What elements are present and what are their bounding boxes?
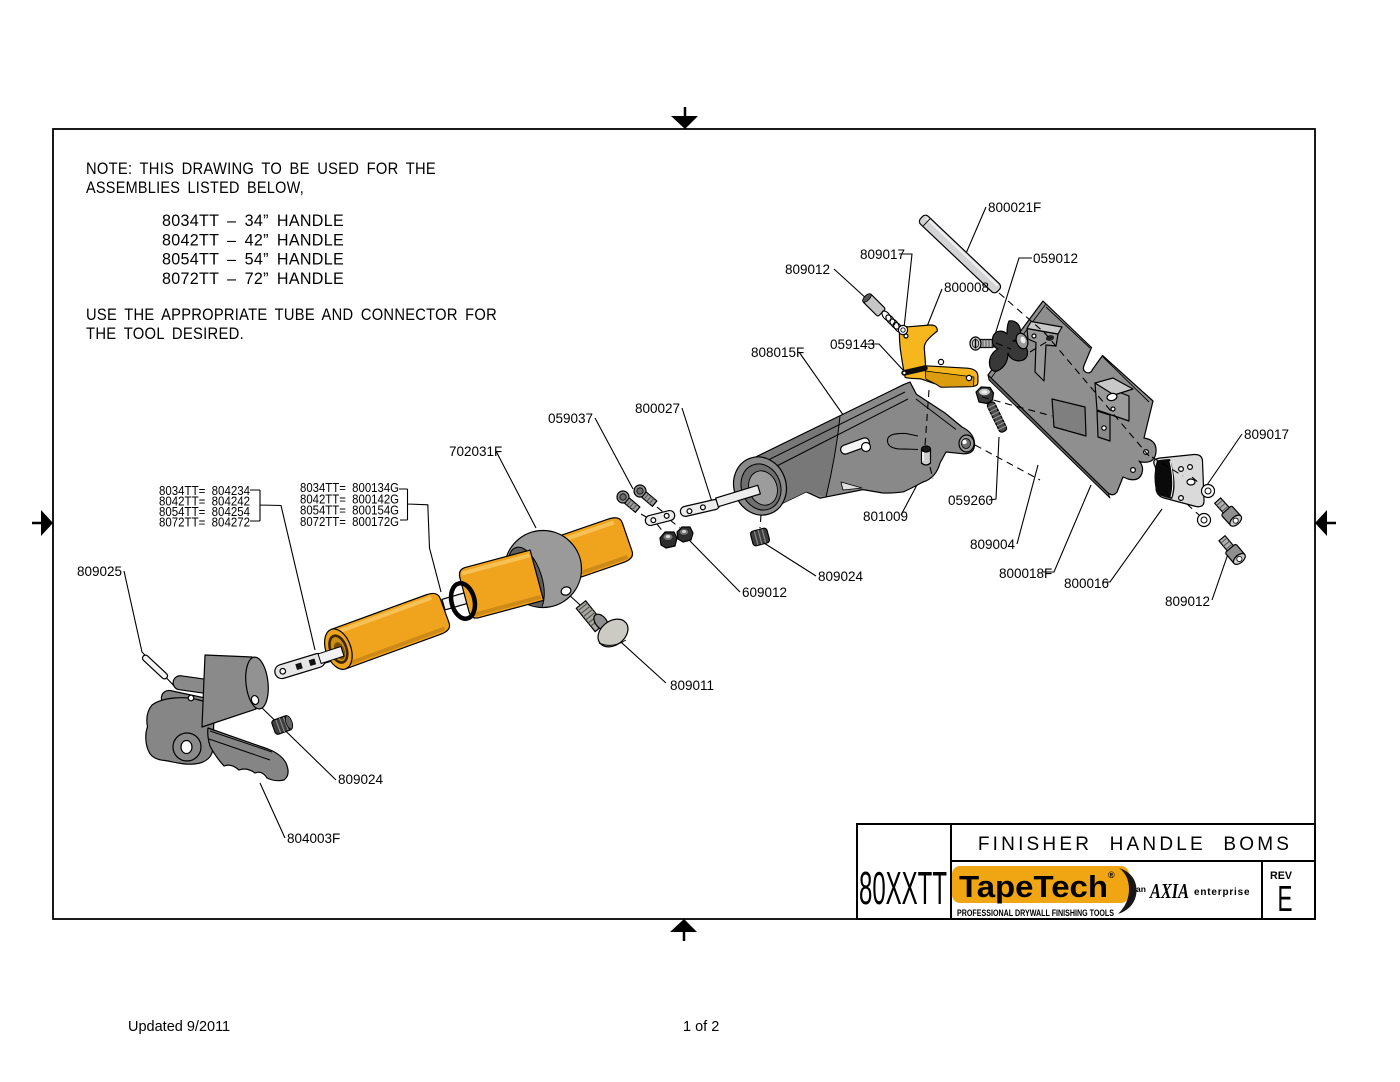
svg-text:8072TT – 72” HANDLE: 8072TT – 72” HANDLE [162,270,344,288]
svg-text:702031F: 702031F [449,444,502,459]
svg-text:FINISHER HANDLE BOMS: FINISHER HANDLE BOMS [978,834,1292,855]
svg-text:8034TT – 34” HANDLE: 8034TT – 34” HANDLE [162,212,344,230]
svg-text:809024: 809024 [338,772,384,787]
svg-text:800008: 800008 [944,280,989,295]
svg-text:8042TT – 42” HANDLE: 8042TT – 42” HANDLE [162,231,344,249]
svg-text:808015F: 808015F [751,345,804,360]
svg-text:®: ® [1108,870,1115,880]
svg-text:800016: 800016 [1064,576,1109,591]
svg-text:800021F: 800021F [988,200,1041,215]
svg-text:8072TT= 804272: 8072TT= 804272 [159,516,250,530]
svg-text:NOTE: THIS DRAWING TO BE USED: NOTE: THIS DRAWING TO BE USED FOR THE [86,160,436,178]
svg-text:E: E [1278,878,1293,919]
svg-text:800027: 800027 [635,401,680,416]
svg-text:809017: 809017 [860,247,905,262]
svg-text:8054TT – 54” HANDLE: 8054TT – 54” HANDLE [162,251,344,269]
svg-text:809011: 809011 [670,678,714,693]
svg-text:80XXTT: 80XXTT [859,862,947,914]
svg-text:an: an [1136,884,1146,894]
svg-text:059037: 059037 [548,411,593,426]
svg-text:800018F: 800018F [999,566,1052,581]
svg-text:1 of 2: 1 of 2 [683,1019,719,1035]
svg-text:809017: 809017 [1244,427,1289,442]
svg-text:801009: 801009 [863,509,908,524]
svg-text:809024: 809024 [818,569,864,584]
svg-text:THE TOOL DESIRED.: THE TOOL DESIRED. [86,325,244,343]
svg-text:809012: 809012 [785,262,830,277]
svg-text:enterprise: enterprise [1194,887,1250,898]
svg-text:AXIA: AXIA [1148,879,1189,903]
svg-text:609012: 609012 [742,585,787,600]
svg-text:059012: 059012 [1033,251,1078,266]
svg-text:804003F: 804003F [287,831,340,846]
svg-text:ASSEMBLIES LISTED BELOW,: ASSEMBLIES LISTED BELOW, [86,179,304,197]
svg-text:809012: 809012 [1165,594,1210,609]
svg-text:059260: 059260 [948,493,993,508]
svg-text:059143: 059143 [830,337,875,352]
svg-text:809025: 809025 [77,564,122,579]
svg-text:PROFESSIONAL DRYWALL FINISHING: PROFESSIONAL DRYWALL FINISHING TOOLS [957,908,1114,918]
svg-text:8072TT= 800172G: 8072TT= 800172G [300,515,399,529]
svg-text:USE THE APPROPRIATE TUBE AND C: USE THE APPROPRIATE TUBE AND CONNECTOR F… [86,306,497,324]
svg-text:TapeTech: TapeTech [959,869,1108,904]
svg-text:Updated 9/2011: Updated 9/2011 [128,1019,230,1035]
svg-text:809004: 809004 [970,537,1016,552]
